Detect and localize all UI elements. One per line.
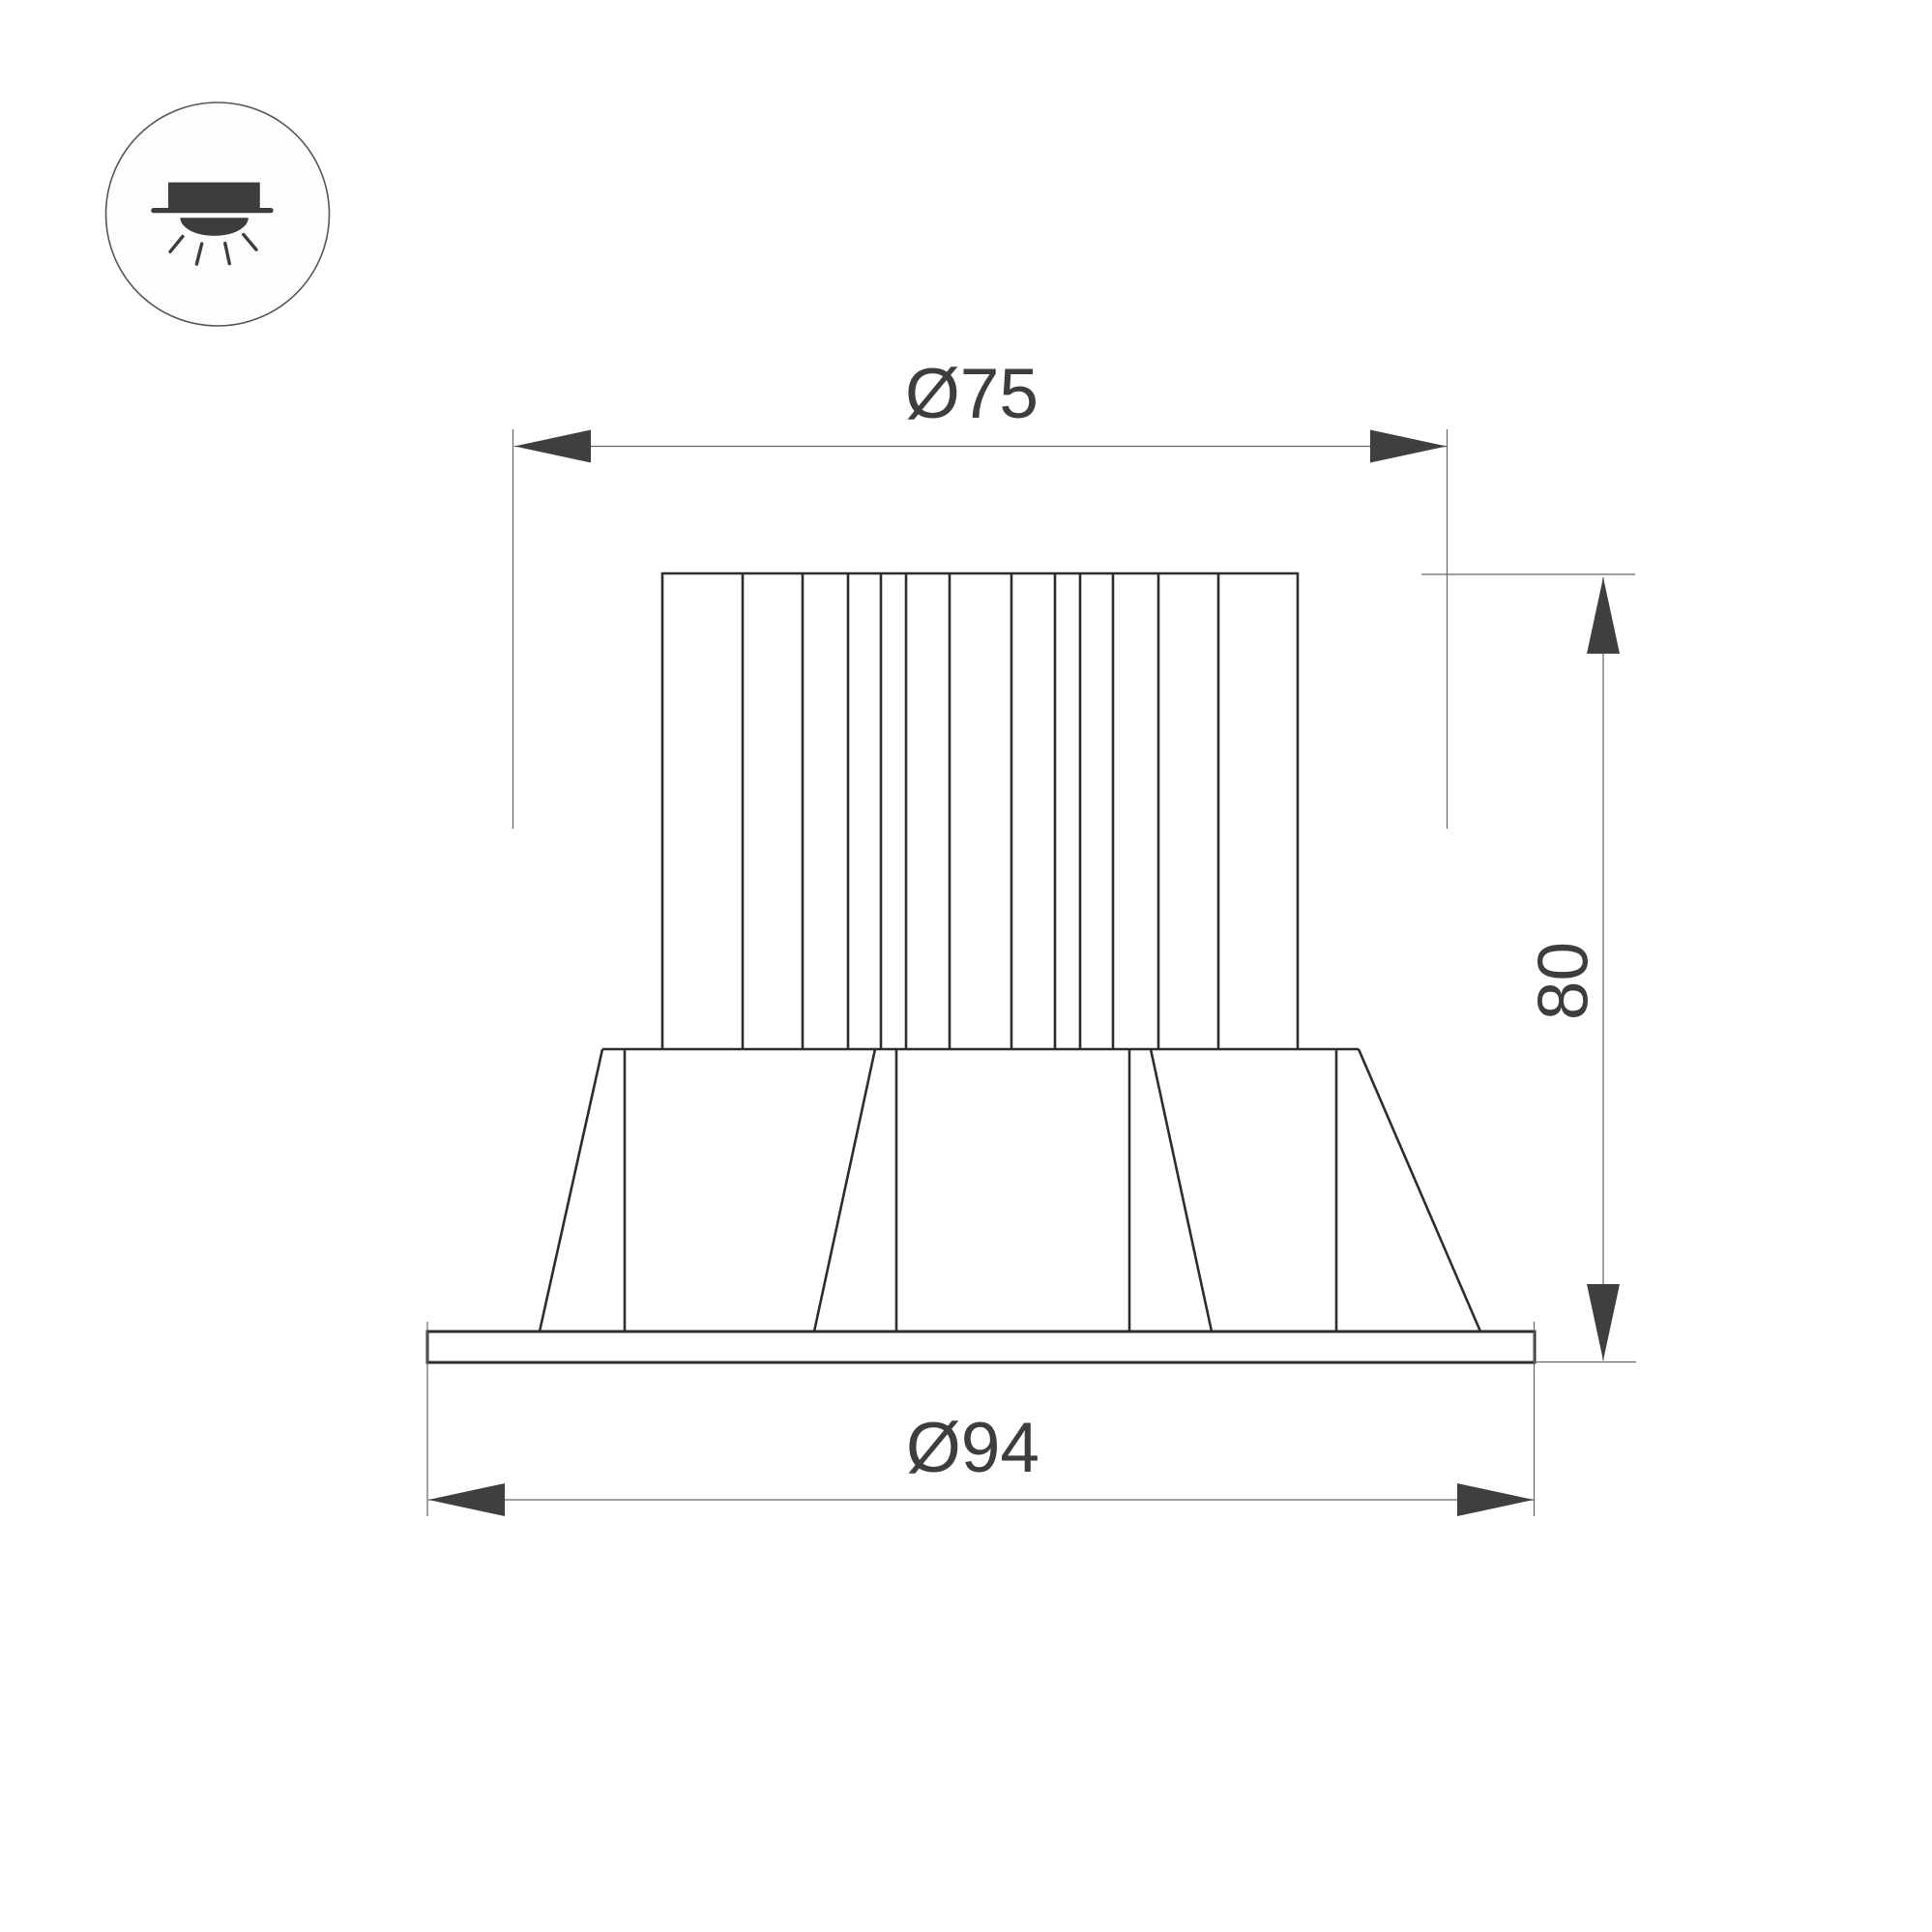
svg-text:Ø75: Ø75: [905, 355, 1039, 433]
svg-text:80: 80: [1525, 942, 1603, 1020]
svg-text:Ø94: Ø94: [906, 1409, 1039, 1487]
